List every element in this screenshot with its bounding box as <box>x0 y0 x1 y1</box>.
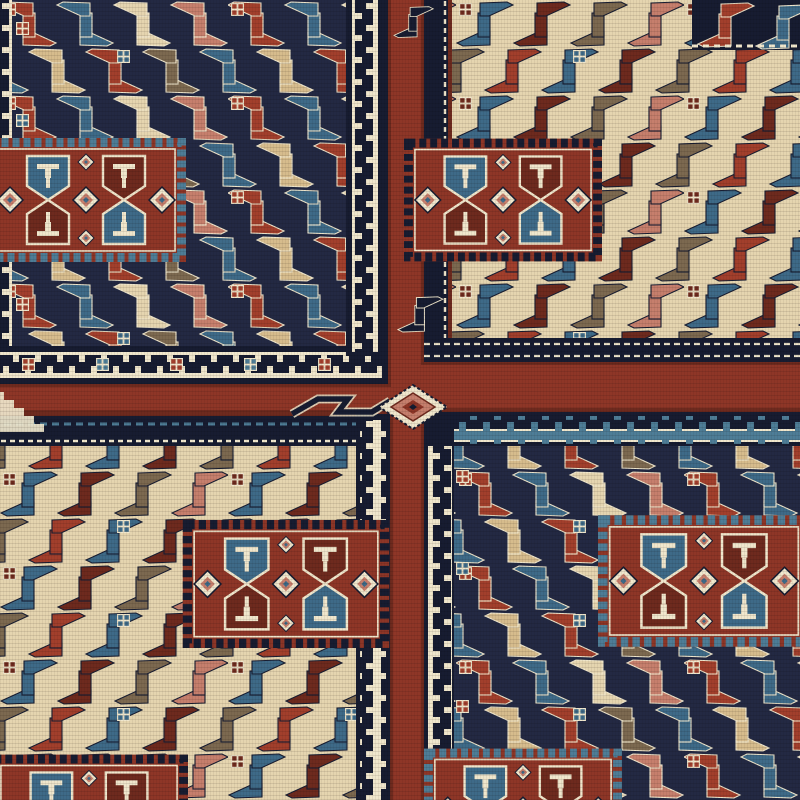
medallion-panel-top-left <box>0 138 186 262</box>
medallion-panel-top-right <box>404 139 602 262</box>
block-bottom-left-ivory <box>0 410 390 800</box>
medallion-panel-bottom-left <box>183 520 389 648</box>
teal-meander-border-top <box>424 408 800 446</box>
block-bottom-right-navy <box>424 408 800 800</box>
meander-border-right <box>346 0 388 356</box>
rug-canvas <box>0 0 800 800</box>
block-top-left-navy <box>0 0 388 384</box>
partial-medallion-panel-bottom-edge-left <box>0 755 188 800</box>
meander-border-left <box>424 412 454 800</box>
battlement-border-bottom <box>424 338 800 362</box>
rug-photo <box>0 0 800 800</box>
meander-border-bottom <box>0 346 388 384</box>
corner-remnant-panel <box>692 0 800 50</box>
partial-medallion-panel-bottom-edge-right <box>424 749 622 800</box>
medallion-panel-bottom-right <box>598 515 800 646</box>
block-top-right-ivory <box>404 0 800 362</box>
